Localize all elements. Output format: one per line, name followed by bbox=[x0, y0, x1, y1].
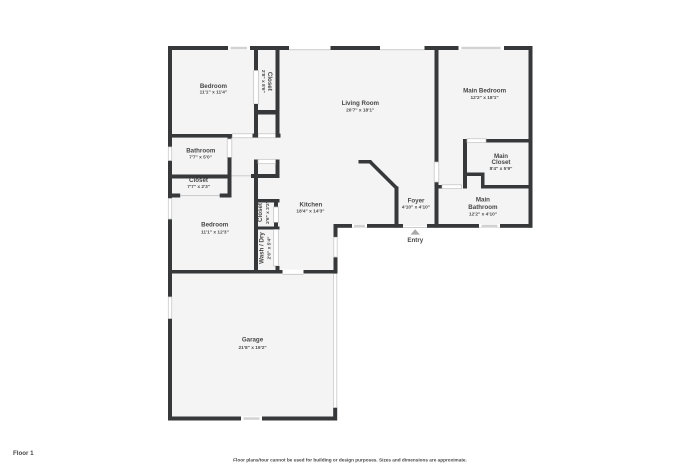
svg-text:Bedroom: Bedroom bbox=[200, 83, 228, 90]
svg-text:18'4" x 14'3": 18'4" x 14'3" bbox=[296, 209, 324, 215]
svg-text:2'6" x 3'2": 2'6" x 3'2" bbox=[265, 201, 271, 224]
svg-text:2'6" x 5'4": 2'6" x 5'4" bbox=[267, 237, 273, 260]
svg-text:Entry: Entry bbox=[407, 237, 423, 244]
svg-text:Foyer: Foyer bbox=[408, 197, 425, 204]
svg-text:Wash / Dry: Wash / Dry bbox=[259, 232, 266, 264]
svg-text:7'7" x 5'0": 7'7" x 5'0" bbox=[189, 155, 212, 161]
svg-text:8'4" x 5'9": 8'4" x 5'9" bbox=[490, 166, 513, 172]
svg-text:Closet: Closet bbox=[257, 203, 264, 222]
svg-text:12'2" x 4'10": 12'2" x 4'10" bbox=[469, 212, 497, 218]
svg-text:Bedroom: Bedroom bbox=[201, 221, 229, 228]
svg-text:Garage: Garage bbox=[242, 337, 264, 344]
svg-text:20'7" x 18'1": 20'7" x 18'1" bbox=[346, 108, 374, 114]
svg-text:21'8" x 19'2": 21'8" x 19'2" bbox=[239, 345, 267, 351]
svg-text:Closet: Closet bbox=[266, 72, 273, 91]
svg-text:7'7" x 2'3": 7'7" x 2'3" bbox=[187, 184, 210, 190]
svg-text:Floor 1: Floor 1 bbox=[13, 450, 34, 457]
svg-text:Main: Main bbox=[476, 197, 490, 204]
svg-text:12'2" x 18'1": 12'2" x 18'1" bbox=[471, 95, 499, 101]
svg-text:2'8" x 8'6": 2'8" x 8'6" bbox=[260, 70, 266, 93]
svg-text:Floor plans/tour cannot be use: Floor plans/tour cannot be used for buil… bbox=[233, 457, 467, 462]
svg-text:11'1" x 11'4": 11'1" x 11'4" bbox=[200, 90, 228, 96]
svg-text:Bathroom: Bathroom bbox=[468, 204, 498, 211]
svg-text:Bathroom: Bathroom bbox=[186, 147, 216, 154]
svg-text:Main Bedroom: Main Bedroom bbox=[463, 88, 506, 95]
svg-text:Closet: Closet bbox=[189, 177, 208, 184]
svg-text:Living Room: Living Room bbox=[342, 100, 380, 107]
svg-text:Closet: Closet bbox=[492, 159, 511, 166]
svg-text:4'10" x 4'10": 4'10" x 4'10" bbox=[402, 204, 430, 210]
svg-text:11'1" x 12'3": 11'1" x 12'3" bbox=[201, 230, 229, 236]
svg-text:Kitchen: Kitchen bbox=[300, 201, 323, 208]
